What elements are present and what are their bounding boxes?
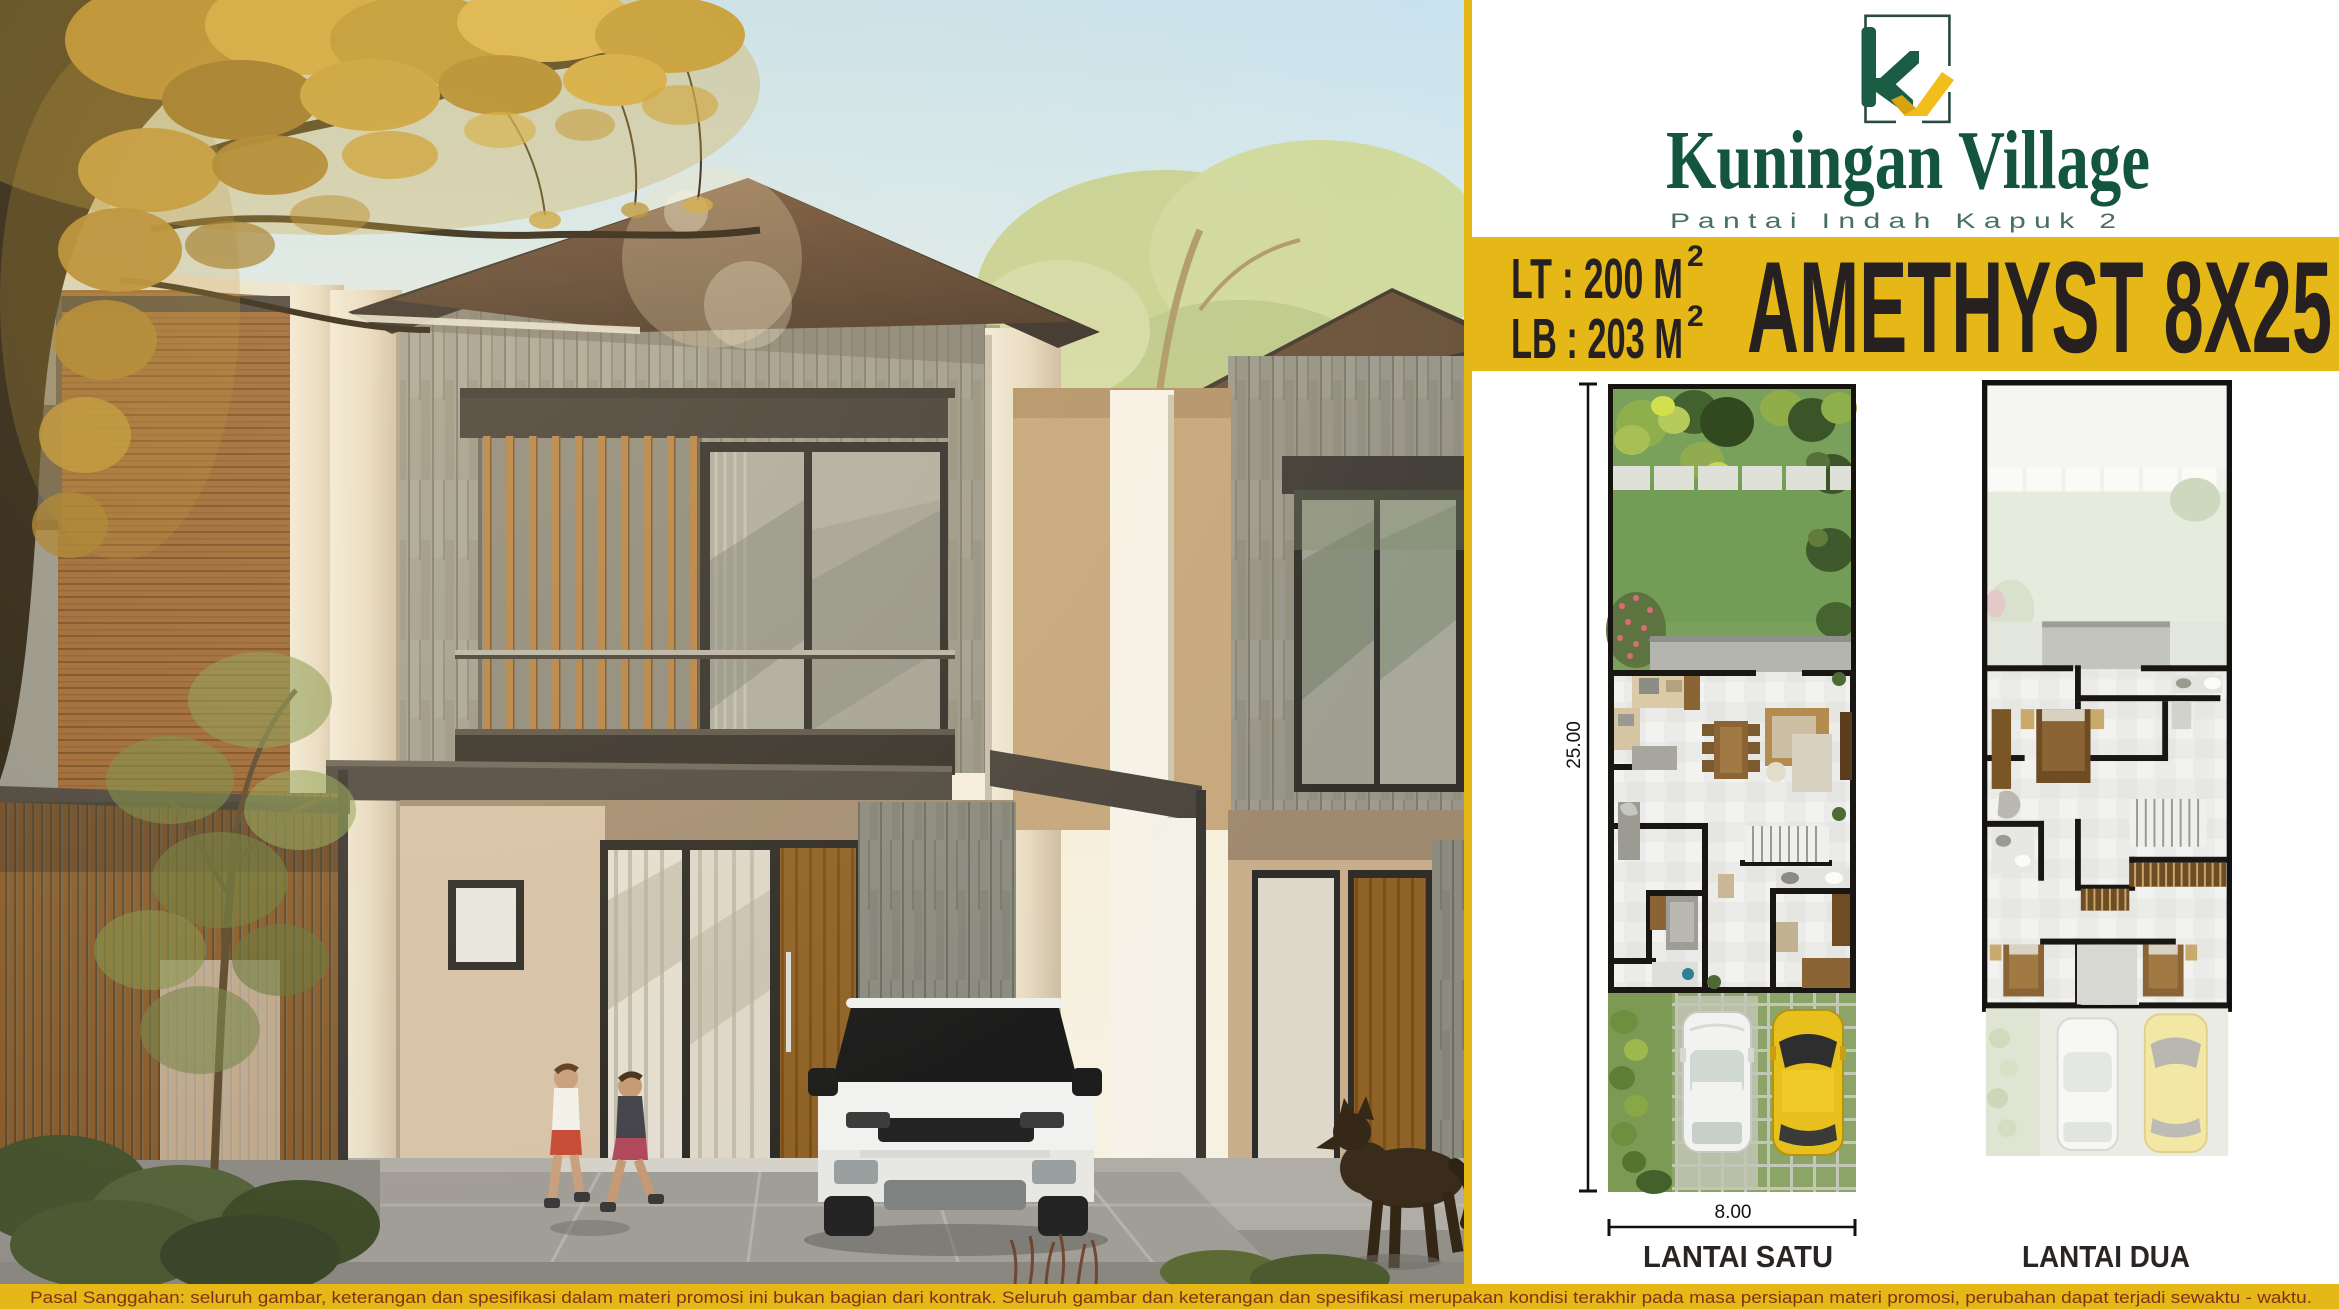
svg-text:LANTAI DUA: LANTAI DUA <box>2022 1239 2190 1274</box>
svg-text:8.00: 8.00 <box>1715 1202 1752 1223</box>
svg-text:LB : 203 M: LB : 203 M <box>1511 307 1683 371</box>
svg-text:2: 2 <box>1687 240 1704 273</box>
svg-text:Kuningan Village: Kuningan Village <box>1666 114 2150 207</box>
svg-text:2: 2 <box>1687 300 1704 333</box>
svg-text:LT : 200 M: LT : 200 M <box>1511 247 1683 311</box>
svg-text:Pasal Sanggahan: seluruh gamba: Pasal Sanggahan: seluruh gambar, keteran… <box>30 1288 2312 1307</box>
svg-text:LANTAI SATU: LANTAI SATU <box>1643 1239 1833 1274</box>
svg-text:25.00: 25.00 <box>1564 721 1585 769</box>
svg-text:AMETHYST 8X25: AMETHYST 8X25 <box>1747 234 2332 380</box>
svg-text:P a n t a i I n d a h K a: P a n t a i I n d a h K a p u k 2 <box>1670 210 2116 233</box>
